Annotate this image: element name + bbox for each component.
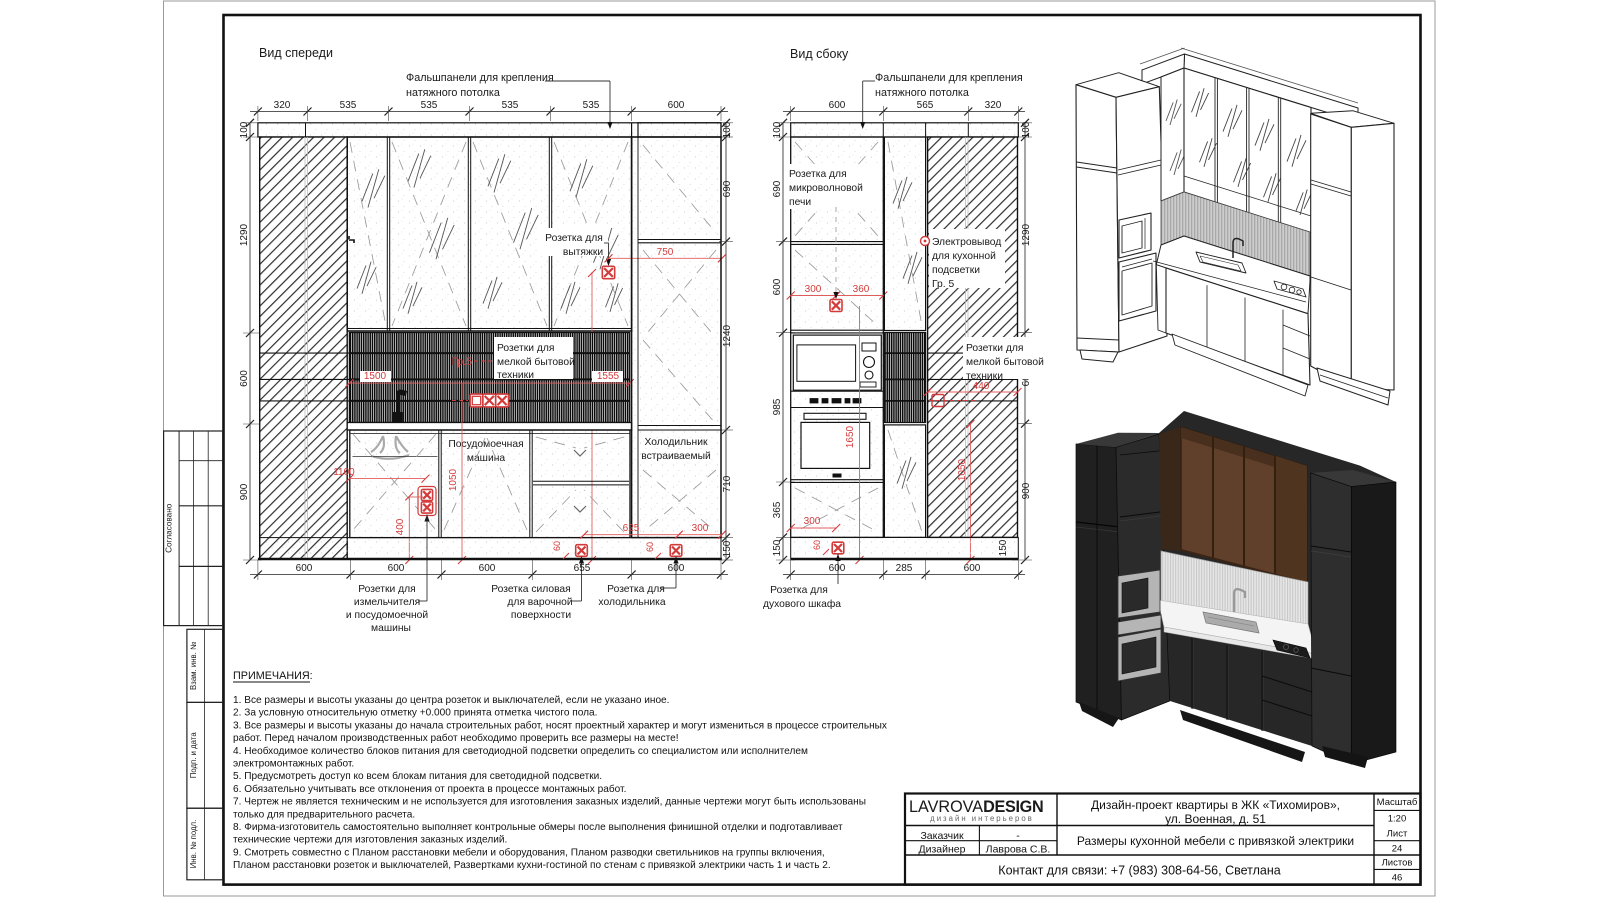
svg-text:300: 300 [804,516,821,527]
svg-text:900: 900 [239,483,250,500]
svg-text:Заказчик: Заказчик [920,830,964,842]
svg-text:150: 150 [722,540,733,557]
svg-text:и посудомоечной: и посудомоечной [346,610,429,621]
svg-text:1240: 1240 [722,324,733,347]
svg-text:Фальшпанели для крепления: Фальшпанели для крепления [406,72,554,84]
svg-text:1050: 1050 [448,468,459,491]
svg-text:Лаврова С.В.: Лаврова С.В. [986,844,1051,856]
svg-text:46: 46 [1392,873,1403,884]
svg-text:Вид спереди: Вид спереди [259,46,333,60]
svg-text:1100: 1100 [333,467,355,478]
svg-text:8. Фирма-изготовитель самостоя: 8. Фирма-изготовитель самостоятельно вып… [233,821,843,833]
svg-text:1:20: 1:20 [1388,814,1407,825]
svg-text:для варочной: для варочной [507,597,573,608]
svg-text:320: 320 [274,100,291,111]
svg-text:Листов: Листов [1382,858,1413,869]
svg-text:24: 24 [1392,844,1403,855]
svg-text:Розетка для: Розетка для [607,584,665,595]
svg-text:440: 440 [973,381,990,392]
svg-text:285: 285 [896,563,913,574]
svg-text:Планом расстановки розеток и в: Планом расстановки розеток и выключателе… [233,860,831,871]
svg-text:машины: машины [371,623,411,634]
svg-text:100: 100 [1021,121,1032,138]
svg-text:натяжного потолка: натяжного потолка [406,87,500,99]
svg-text:Лист: Лист [1387,829,1408,840]
svg-text:600: 600 [668,563,685,574]
svg-text:60: 60 [645,542,655,552]
svg-text:3. Все размеры и высоты указан: 3. Все размеры и высоты указаны до начал… [233,719,887,731]
svg-text:900: 900 [1021,482,1032,499]
svg-text:600: 600 [772,278,783,295]
svg-text:Розетка силовая: Розетка силовая [491,584,570,595]
svg-text:100: 100 [239,121,250,138]
svg-text:400: 400 [395,518,406,535]
svg-text:565: 565 [917,100,934,111]
svg-text:7. Чертеж не является техничес: 7. Чертеж не является техническим и не и… [233,796,866,808]
svg-text:Розетка для: Розетка для [789,169,847,180]
svg-text:1650: 1650 [845,425,856,448]
svg-text:подсветки: подсветки [932,265,980,276]
svg-text:625: 625 [623,523,640,534]
svg-text:1500: 1500 [364,371,387,382]
svg-text:Розетки для: Розетки для [497,343,554,354]
svg-text:690: 690 [722,180,733,197]
svg-text:Розетка для: Розетка для [545,233,603,244]
svg-text:технические чертежи для изгото: технические чертежи для изготовления зак… [233,835,507,846]
svg-text:холодильника: холодильника [598,597,665,608]
svg-text:985: 985 [772,398,783,415]
svg-text:600: 600 [829,100,846,111]
svg-text:Розетка для: Розетка для [770,585,828,596]
svg-text:600: 600 [668,100,685,111]
svg-text:320: 320 [985,100,1002,111]
svg-text:Розетки для: Розетки для [966,343,1023,354]
svg-text:Вид сбоку: Вид сбоку [790,47,849,61]
svg-text:Подп. и дата: Подп. и дата [189,732,198,779]
svg-text:600: 600 [479,563,496,574]
svg-text:4. Необходимое количество блок: 4. Необходимое количество блоков питания… [233,745,808,757]
svg-text:1555: 1555 [597,371,620,382]
svg-text:150: 150 [998,539,1009,556]
svg-text:1050: 1050 [957,458,968,481]
svg-text:360: 360 [853,284,870,295]
svg-text:710: 710 [722,475,733,492]
svg-text:1290: 1290 [239,223,250,246]
svg-text:535: 535 [502,100,519,111]
svg-text:дизайн интерьеров: дизайн интерьеров [930,814,1034,823]
svg-text:Фальшпанели для крепления: Фальшпанели для крепления [875,72,1023,84]
svg-text:электромонтажных работ.: электромонтажных работ. [233,758,354,770]
svg-text:2. За условную относительную о: 2. За условную относительную отметку +0.… [233,708,597,719]
svg-text:Гр.5: Гр.5 [452,356,473,368]
svg-text:600: 600 [296,563,313,574]
svg-text:100: 100 [772,121,783,138]
svg-text:поверхности: поверхности [511,610,571,621]
svg-text:Холодильник: Холодильник [645,437,708,448]
svg-text:Электровывод: Электровывод [932,237,1001,248]
svg-text:мелкой бытовой: мелкой бытовой [497,356,575,368]
svg-text:печи: печи [789,197,811,208]
svg-text:микроволновой: микроволновой [789,183,863,194]
svg-text:1. Все размеры и высоты указан: 1. Все размеры и высоты указаны до центр… [233,695,669,706]
svg-text:Контакт для связи: +7 (983) 30: Контакт для связи: +7 (983) 308-64-56, С… [998,864,1280,878]
svg-text:Масштаб: Масштаб [1377,797,1418,808]
svg-text:духового шкафа: духового шкафа [763,598,841,610]
svg-text:Дизайн-проект квартиры в ЖК «Т: Дизайн-проект квартиры в ЖК «Тихомиров», [1091,798,1340,812]
svg-text:для кухонной: для кухонной [932,251,996,262]
svg-text:работ. Перед началом производс: работ. Перед началом производственных ра… [233,732,679,744]
svg-text:9. Смотреть совместно с Планом: 9. Смотреть совместно с Планом расстанов… [233,846,825,858]
svg-text:только для предварительного ра: только для предварительного расчета. [233,809,415,820]
svg-text:150: 150 [772,539,783,556]
svg-text:60: 60 [812,540,822,550]
svg-text:вытяжки: вытяжки [563,247,604,258]
svg-text:встраиваемый: встраиваемый [641,451,711,462]
svg-text:100: 100 [722,121,733,138]
svg-text:машина: машина [467,453,506,464]
svg-text:5. Предусмотреть доступ ко все: 5. Предусмотреть доступ ко всем блокам п… [233,770,602,782]
svg-text:300: 300 [805,284,822,295]
svg-text:техники: техники [497,370,534,381]
svg-text:1290: 1290 [1021,223,1032,246]
svg-text:ПРИМЕЧАНИЯ:: ПРИМЕЧАНИЯ: [233,670,313,682]
svg-text:Инв. № подл.: Инв. № подл. [189,820,198,869]
svg-text:Посудомоечная: Посудомоечная [448,439,523,450]
svg-text:690: 690 [772,180,783,197]
svg-text:мелкой бытовой: мелкой бытовой [966,356,1044,368]
svg-text:535: 535 [340,100,357,111]
svg-text:600: 600 [239,370,250,387]
svg-text:655: 655 [574,563,591,574]
svg-text:Взам. инв. №: Взам. инв. № [189,642,198,690]
svg-text:Размеры кухонной мебели с прив: Размеры кухонной мебели с привязкой элек… [1077,834,1354,848]
svg-text:измельчителя: измельчителя [354,597,420,608]
svg-text:натяжного потолка: натяжного потолка [875,87,969,99]
svg-text:Дизайнер: Дизайнер [919,844,966,856]
svg-text:Согласовано: Согласовано [165,503,174,553]
svg-text:600: 600 [829,563,846,574]
svg-text:ул. Военная, д. 51: ул. Военная, д. 51 [1165,812,1266,826]
svg-text:600: 600 [388,563,405,574]
svg-text:300: 300 [692,523,709,534]
svg-text:-: - [1016,830,1020,842]
svg-text:535: 535 [583,100,600,111]
svg-text:Гр. 5: Гр. 5 [932,279,954,290]
svg-text:6. Обязательно учитывать все о: 6. Обязательно учитывать все отклонения … [233,783,626,795]
svg-text:Розетки для: Розетки для [358,584,415,595]
svg-text:535: 535 [421,100,438,111]
svg-text:60: 60 [552,541,562,551]
svg-text:600: 600 [964,563,981,574]
svg-text:365: 365 [772,501,783,518]
